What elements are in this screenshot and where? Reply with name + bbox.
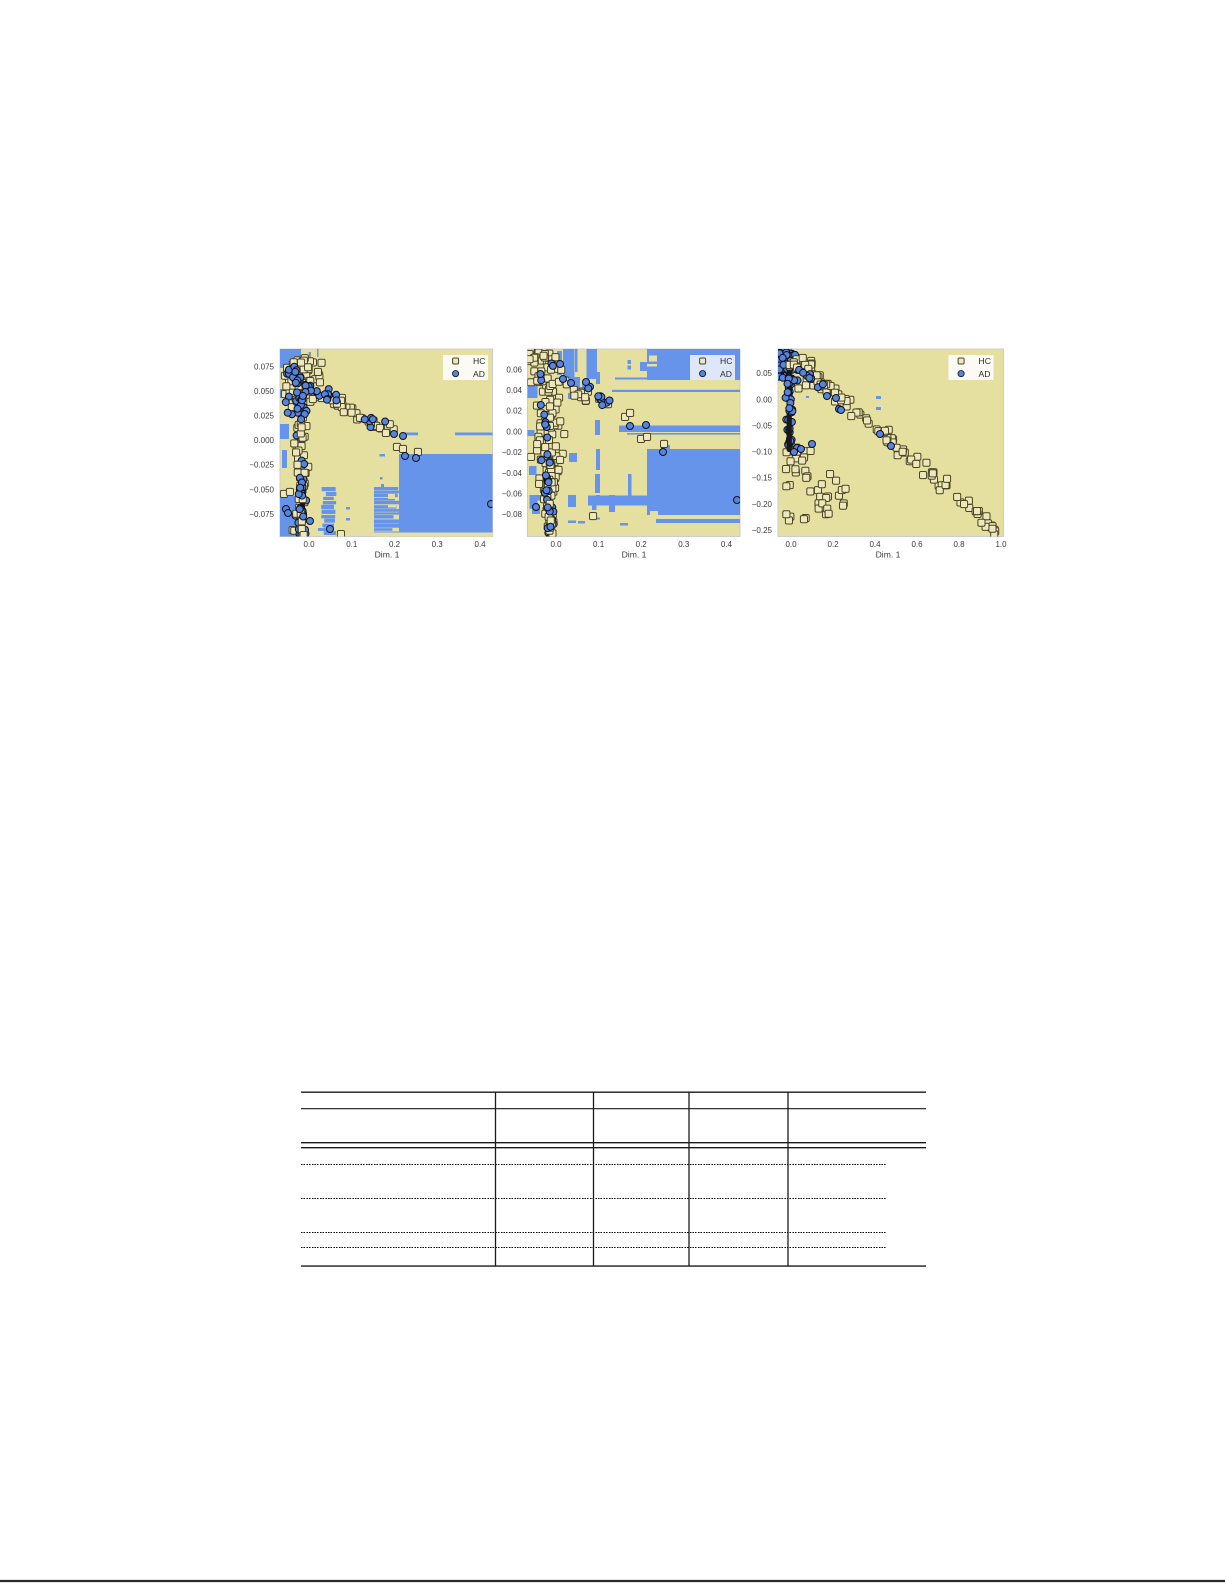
svg-text:0.8: 0.8 — [953, 540, 965, 549]
svg-text:0.0: 0.0 — [550, 540, 562, 549]
svg-text:0.4: 0.4 — [721, 540, 733, 549]
svg-text:0.050: 0.050 — [254, 387, 275, 396]
svg-text:AD: AD — [979, 369, 991, 379]
svg-text:0.06: 0.06 — [506, 365, 522, 374]
svg-text:Dim. 1: Dim. 1 — [876, 550, 901, 560]
svg-text:0.4: 0.4 — [474, 540, 486, 549]
svg-text:0.3: 0.3 — [432, 540, 444, 549]
svg-text:0.05: 0.05 — [756, 369, 772, 378]
svg-text:0.000: 0.000 — [254, 436, 275, 445]
svg-text:0.4: 0.4 — [869, 540, 881, 549]
svg-text:−0.10: −0.10 — [752, 448, 773, 457]
svg-text:0.3: 0.3 — [678, 540, 690, 549]
svg-text:HC: HC — [720, 356, 732, 366]
svg-text:0.1: 0.1 — [593, 540, 605, 549]
svg-text:−0.05: −0.05 — [752, 422, 773, 431]
svg-text:0.2: 0.2 — [827, 540, 839, 549]
svg-text:−0.25: −0.25 — [752, 526, 773, 535]
svg-text:−0.15: −0.15 — [752, 474, 773, 483]
svg-text:Dim. 1: Dim. 1 — [622, 550, 647, 560]
svg-text:−0.02: −0.02 — [502, 448, 523, 457]
svg-text:0.04: 0.04 — [506, 386, 522, 395]
svg-text:Dim. 1: Dim. 1 — [375, 550, 400, 560]
svg-text:−0.06: −0.06 — [502, 490, 523, 499]
svg-text:−0.04: −0.04 — [502, 469, 523, 478]
svg-text:0.6: 0.6 — [911, 540, 923, 549]
svg-text:HC: HC — [979, 356, 991, 366]
svg-text:−0.050: −0.050 — [249, 485, 274, 494]
svg-text:0.0: 0.0 — [785, 540, 797, 549]
svg-text:−0.075: −0.075 — [249, 510, 274, 519]
svg-text:AD: AD — [473, 369, 485, 379]
svg-text:0.00: 0.00 — [506, 427, 522, 436]
svg-text:0.1: 0.1 — [346, 540, 358, 549]
svg-text:0.075: 0.075 — [254, 362, 275, 371]
svg-text:0.2: 0.2 — [636, 540, 648, 549]
svg-text:0.00: 0.00 — [756, 395, 772, 404]
svg-text:0.2: 0.2 — [389, 540, 401, 549]
svg-text:0.0: 0.0 — [303, 540, 315, 549]
svg-text:−0.20: −0.20 — [752, 500, 773, 509]
svg-text:−0.08: −0.08 — [502, 510, 523, 519]
svg-text:0.02: 0.02 — [506, 407, 522, 416]
svg-text:−0.025: −0.025 — [249, 461, 274, 470]
svg-text:HC: HC — [473, 356, 485, 366]
svg-text:1.0: 1.0 — [995, 540, 1007, 549]
svg-text:0.025: 0.025 — [254, 412, 275, 421]
svg-text:AD: AD — [720, 369, 732, 379]
